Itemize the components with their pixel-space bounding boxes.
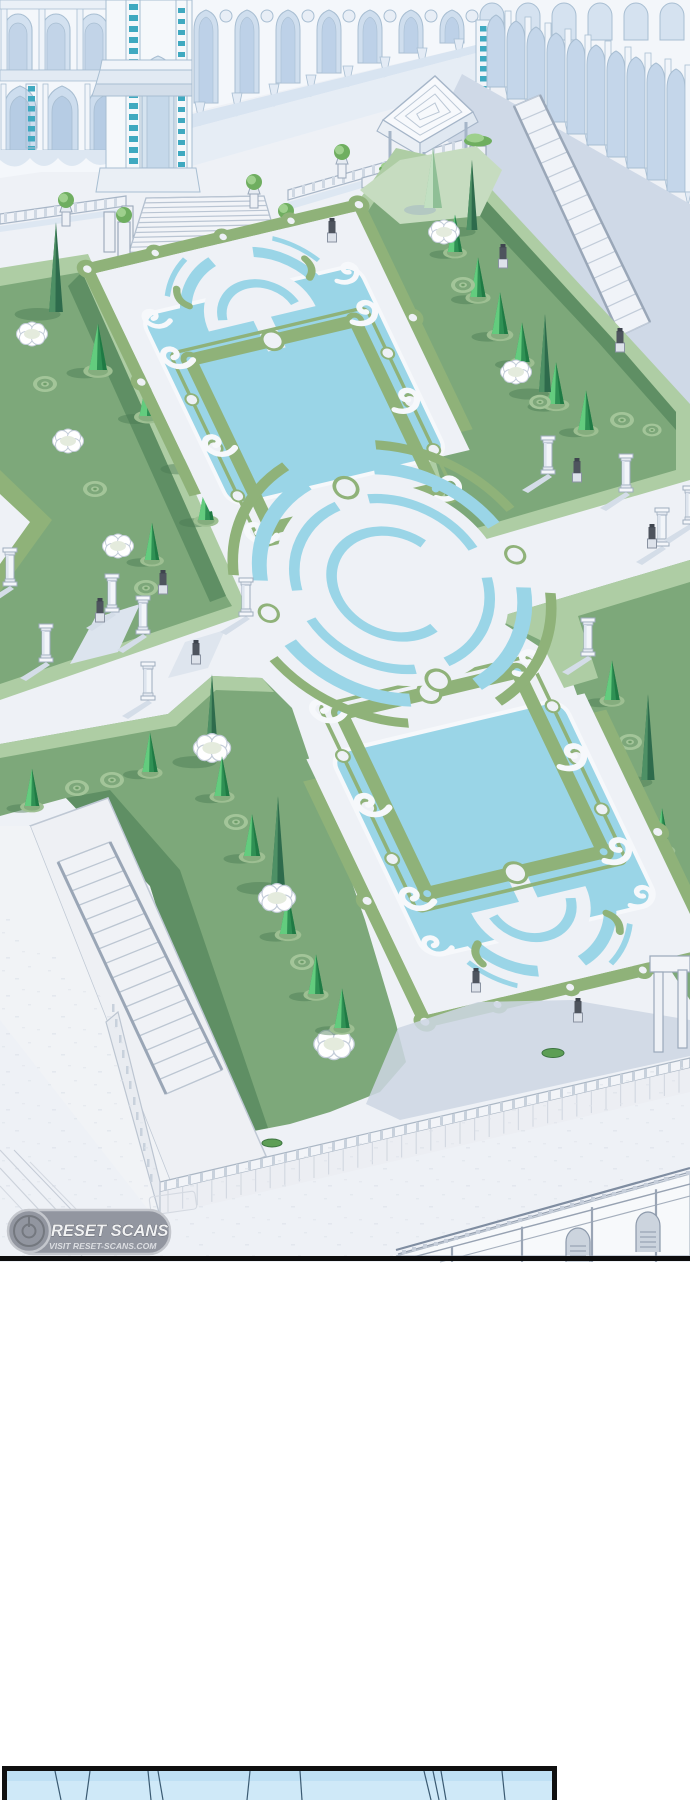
svg-text:RESET SCANS: RESET SCANS xyxy=(51,1222,168,1240)
svg-text:VISIT RESET-SCANS.COM: VISIT RESET-SCANS.COM xyxy=(49,1241,157,1251)
